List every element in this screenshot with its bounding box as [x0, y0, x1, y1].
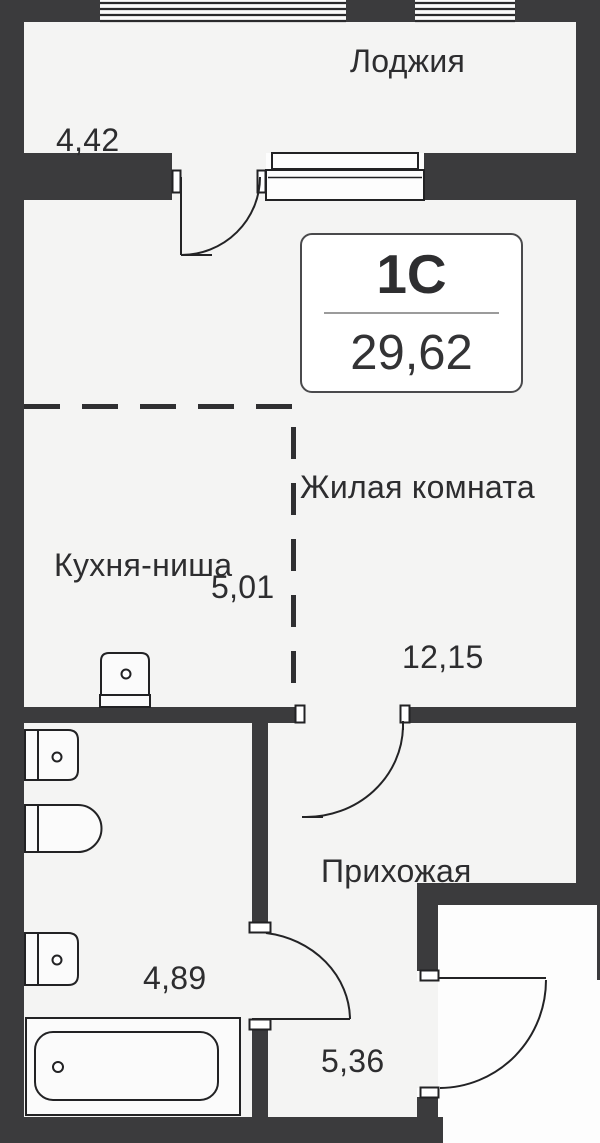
bathroom-door-icon [252, 933, 350, 1019]
room-label-hallway: Прихожая [321, 854, 472, 889]
toilet-icon [25, 805, 102, 852]
loggia-window-right-icon [415, 0, 515, 22]
loggia-window-left-icon [100, 0, 346, 22]
washbasin-bottom-icon [25, 933, 78, 985]
unit-type-label: 1С [376, 242, 446, 306]
floor-plan: Лоджия 4,42 Жилая комната Кухня-ниша 5,0… [0, 0, 600, 1143]
room-area-loggia: 4,42 [56, 123, 119, 158]
room-area-living-room: 12,15 [402, 640, 484, 675]
bathtub-icon [26, 1018, 240, 1115]
room-label-kitchen-niche: Кухня-ниша [54, 548, 232, 583]
room-label-loggia: Лоджия [350, 44, 465, 79]
room-area-bathroom: 4,89 [143, 961, 206, 996]
unit-info-box: 1С 29,62 [300, 233, 523, 393]
entrance-door-icon [438, 978, 546, 1088]
room-area-kitchen-niche: 5,01 [211, 570, 274, 605]
loggia-door-icon [181, 177, 260, 255]
room-label-living-room: Жилая комната [300, 470, 535, 505]
washbasin-top-icon [25, 730, 78, 780]
room-area-hallway: 5,36 [321, 1044, 384, 1079]
unit-total-area: 29,62 [350, 325, 473, 381]
balcony-window-block-icon [266, 153, 424, 200]
room-door-icon [302, 721, 403, 817]
kitchen-sink-icon [100, 653, 150, 707]
